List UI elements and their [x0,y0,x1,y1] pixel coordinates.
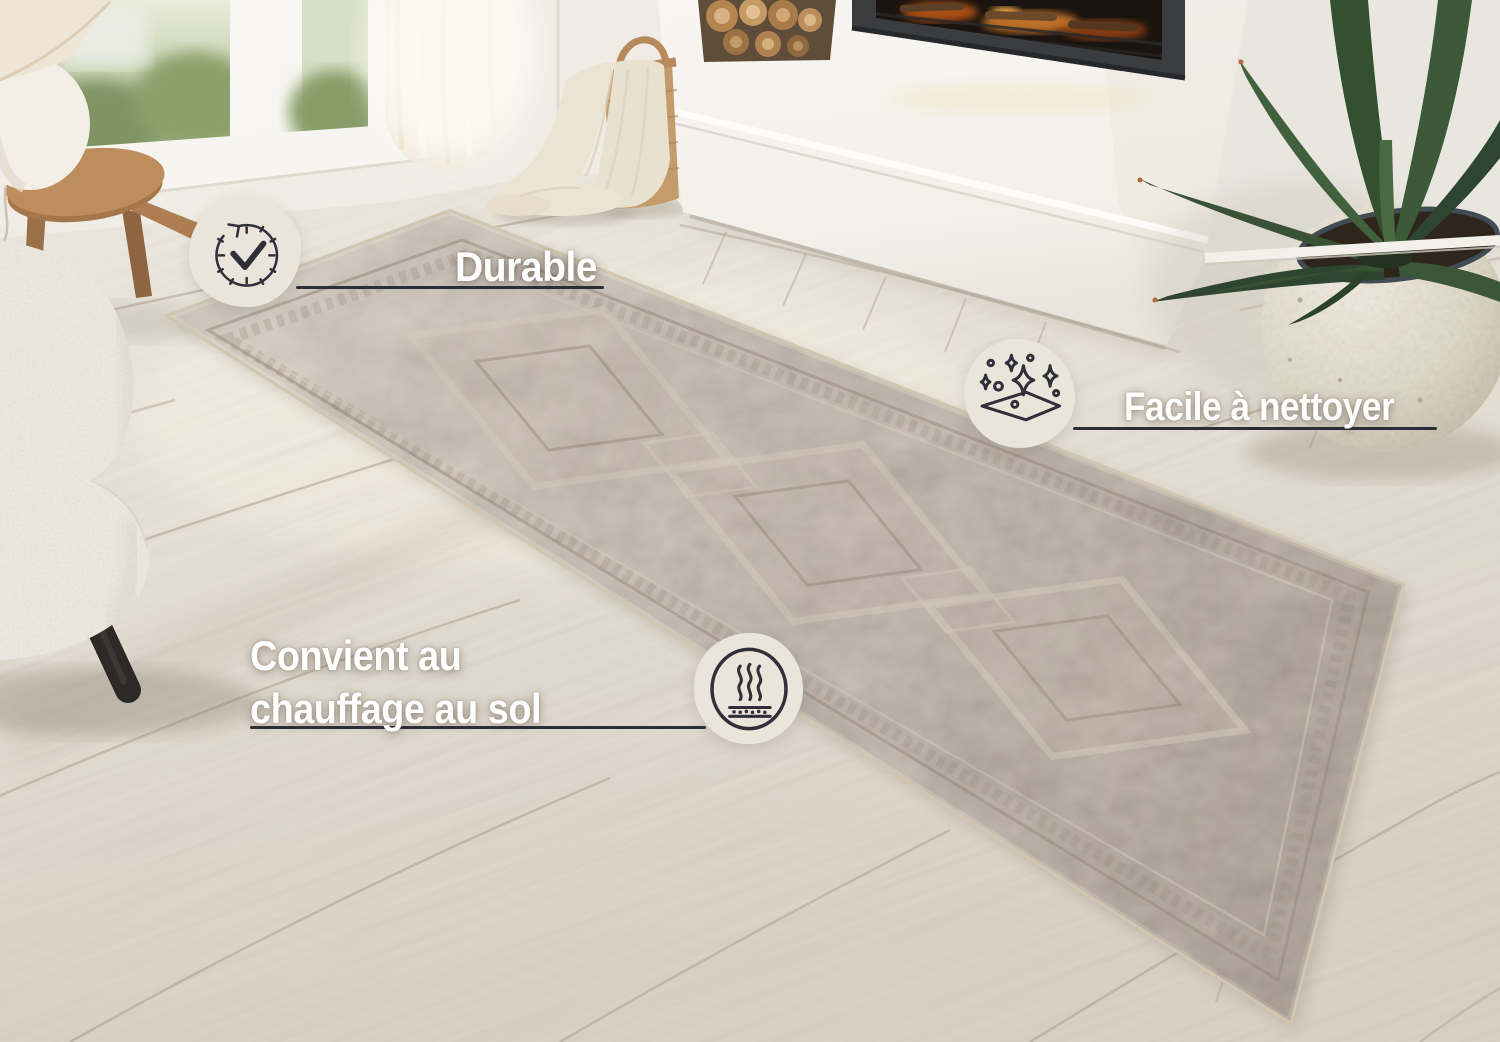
easy-clean-badge [964,339,1075,448]
product-feature-image: Durable Facile à nettoyer Convient au ch… [0,0,1500,1042]
durability-label: Durable [455,243,597,291]
floor-heating-badge [694,633,803,744]
firewood-logs [698,0,836,62]
durability-badge [189,197,301,307]
floor-heating-label: Convient au chauffage au sol [250,629,541,735]
floor-heating-label-line1: Convient au [250,629,541,682]
scene-illustration [0,0,1500,1042]
sparkle-clean-icon [977,351,1063,437]
floor-heating-label-line2: chauffage au sol [250,682,541,735]
easy-clean-label: Facile à nettoyer [1124,385,1394,430]
floor-heating-icon [705,645,793,733]
clock-durability-icon [203,210,287,294]
